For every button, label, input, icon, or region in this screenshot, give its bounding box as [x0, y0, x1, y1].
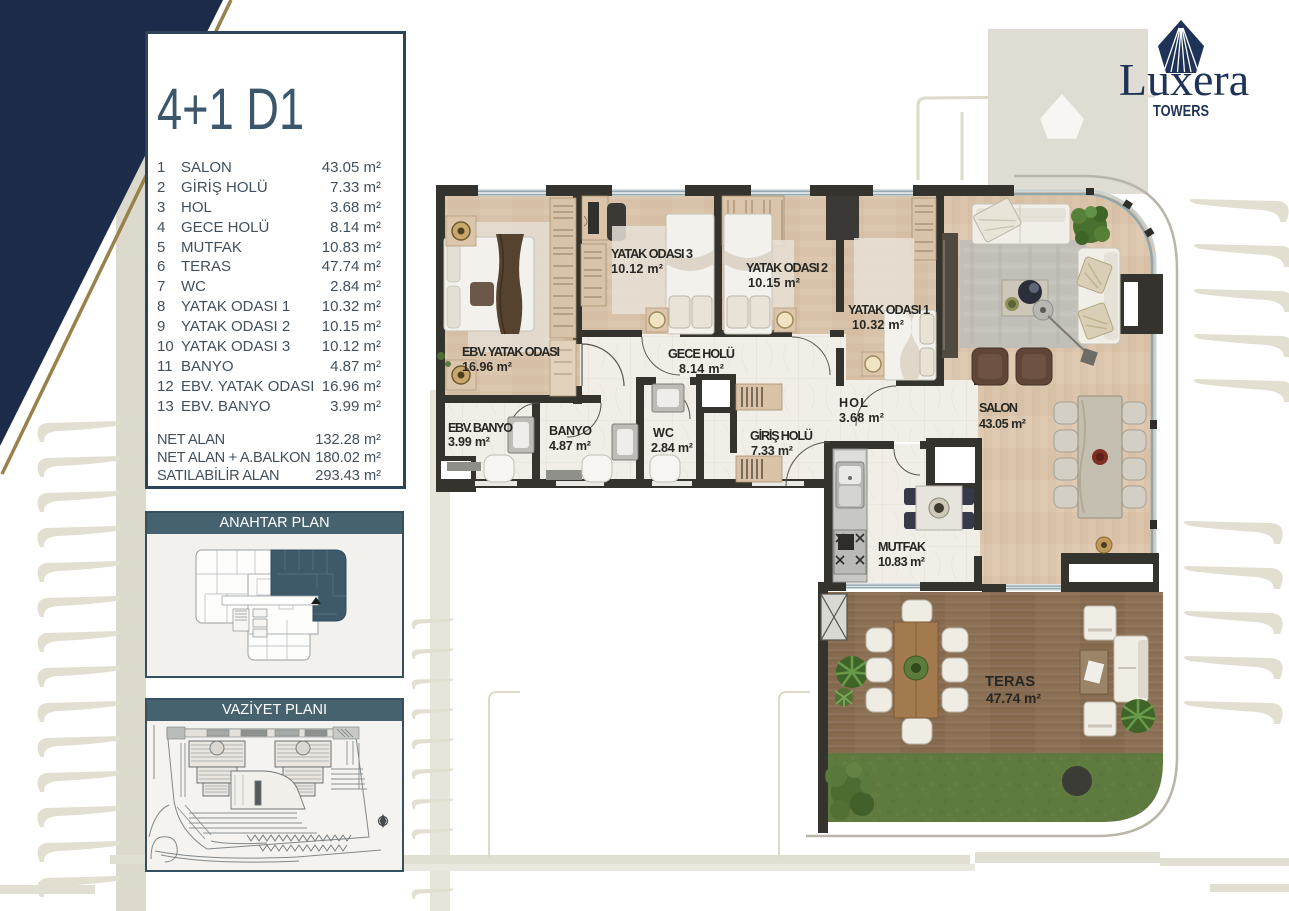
svg-text:Luxera: Luxera [1119, 54, 1249, 105]
svg-text:WC: WC [653, 426, 674, 440]
svg-text:10.32 m²: 10.32 m² [852, 318, 904, 332]
svg-text:4.87 m²: 4.87 m² [549, 439, 591, 453]
svg-text:3.68 m²: 3.68 m² [839, 411, 884, 425]
svg-text:10.12 m²: 10.12 m² [611, 262, 663, 276]
svg-text:BANYO: BANYO [549, 424, 592, 438]
svg-text:GECE HOLÜ: GECE HOLÜ [668, 346, 735, 361]
svg-text:TERAS: TERAS [985, 674, 1035, 690]
svg-text:EBV. YATAK ODASI: EBV. YATAK ODASI [462, 345, 560, 359]
svg-text:HOL: HOL [839, 396, 868, 410]
svg-text:7.33 m²: 7.33 m² [751, 444, 793, 458]
svg-text:TOWERS: TOWERS [1153, 103, 1209, 120]
svg-text:2.84 m²: 2.84 m² [651, 441, 693, 455]
svg-text:10.83 m²: 10.83 m² [878, 555, 925, 569]
svg-text:43.05 m²: 43.05 m² [979, 417, 1026, 431]
svg-text:8.14 m²: 8.14 m² [679, 362, 724, 376]
svg-text:16.96 m²: 16.96 m² [462, 360, 512, 374]
svg-text:YATAK ODASI 1: YATAK ODASI 1 [848, 303, 930, 317]
svg-text:47.74 m²: 47.74 m² [986, 690, 1041, 706]
svg-text:EBV. BANYO: EBV. BANYO [448, 421, 513, 435]
svg-text:GİRİŞ HOLÜ: GİRİŞ HOLÜ [750, 428, 813, 443]
svg-text:10.15 m²: 10.15 m² [748, 276, 800, 290]
svg-text:YATAK ODASI 2: YATAK ODASI 2 [746, 261, 828, 275]
svg-text:YATAK ODASI 3: YATAK ODASI 3 [611, 247, 693, 261]
svg-text:SALON: SALON [979, 401, 1018, 415]
svg-text:3.99 m²: 3.99 m² [448, 435, 490, 449]
svg-text:MUTFAK: MUTFAK [878, 540, 926, 554]
